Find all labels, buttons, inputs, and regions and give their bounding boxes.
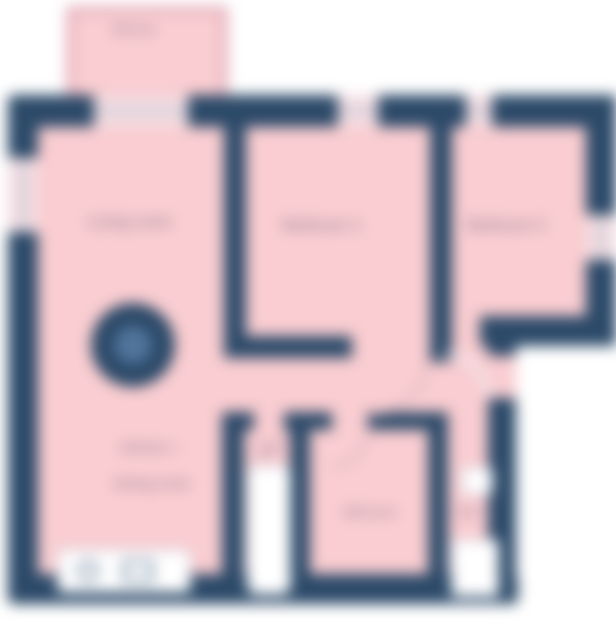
balcony-label: Balcony (113, 22, 156, 36)
living-room-label: Living room (89, 214, 172, 231)
bathroom-label: Bathroom (344, 505, 396, 519)
wall-wc-top-left (222, 412, 254, 430)
wall-wc-top-right (284, 412, 310, 430)
balcony-floor (66, 6, 228, 98)
wall-kitchen-bathroom (222, 412, 244, 574)
floor-plan-screenshot: Balcony (0, 0, 616, 624)
room-balcony: Balcony (66, 6, 228, 98)
bedroom1-label: Bedroom 1 (283, 217, 361, 234)
wall-bedroom1-bottom (224, 336, 352, 358)
blurred-scene: Balcony (0, 0, 616, 624)
kitchen-label-line1: Kitchen + (121, 439, 180, 455)
kitchen-counter-icon (58, 550, 190, 592)
floor-plan-svg: Balcony (0, 0, 616, 624)
wall-bedroom1-bedroom2 (430, 127, 452, 362)
exterior-cutout (505, 346, 616, 624)
cabinet-icon (452, 540, 498, 596)
entrance-door-opening (488, 356, 516, 398)
table-inner (114, 326, 152, 364)
wall-bathroom-top-left (310, 412, 332, 430)
bathtub-icon (248, 466, 290, 594)
wall-wc-bathroom (290, 412, 310, 577)
hall-label: Hall (456, 505, 477, 519)
entry-mat-icon (462, 468, 492, 494)
wc-label: WC (258, 441, 278, 455)
bedroom2-label: Bedroom 2 (467, 217, 545, 234)
kitchen-label-line2: Dining room (114, 475, 189, 491)
wall-bathroom-hall (428, 412, 448, 577)
wall-living-bedroom1 (224, 127, 246, 357)
dining-table-icon (91, 303, 175, 387)
